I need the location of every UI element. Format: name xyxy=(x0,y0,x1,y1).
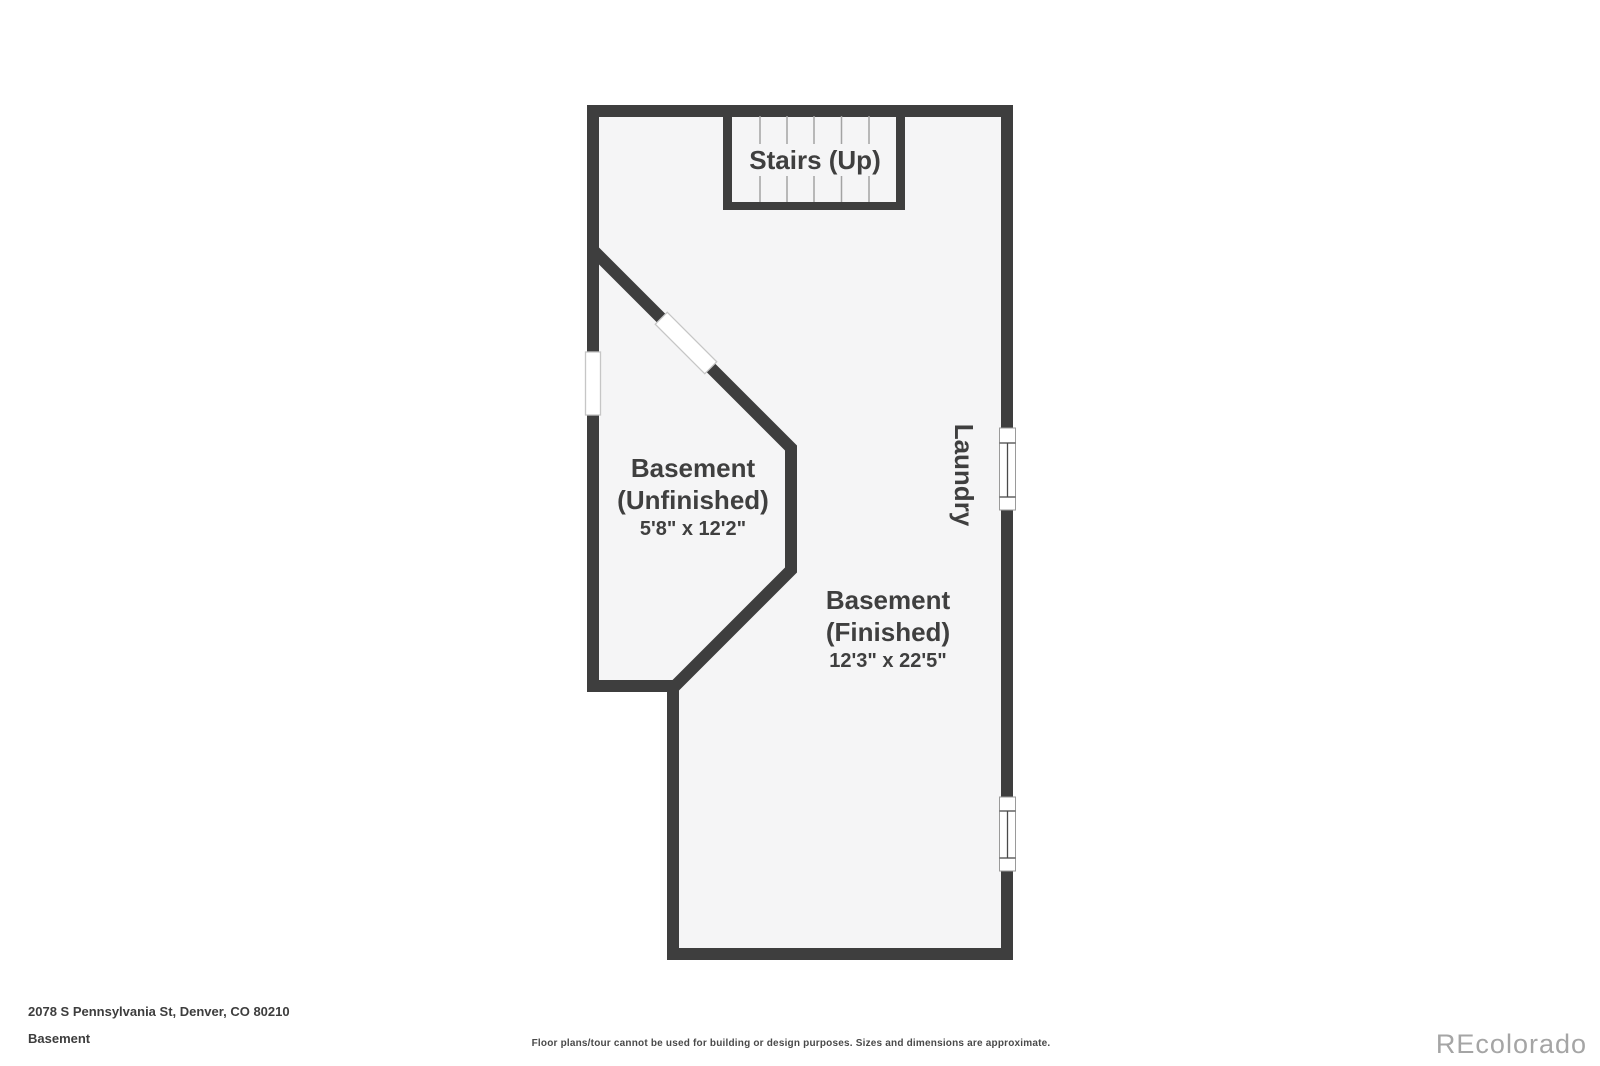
floor-name: Basement xyxy=(28,1031,90,1047)
room-name-line1: Basement xyxy=(778,584,998,616)
room-name-line2: (Finished) xyxy=(778,616,998,648)
room-name-line1: Basement xyxy=(583,452,803,484)
room-name-line2: (Unfinished) xyxy=(583,484,803,516)
window-right-wall-upper xyxy=(1000,428,1016,510)
recolorado-watermark: REcolorado xyxy=(1436,1029,1587,1059)
room-label-basement-unfinished: Basement (Unfinished) 5'8" x 12'2" xyxy=(583,452,803,542)
property-address: 2078 S Pennsylvania St, Denver, CO 80210 xyxy=(28,1004,290,1020)
floor-plan-page: Stairs (Up) Basement (Unfinished) 5'8" x… xyxy=(0,0,1600,1066)
room-label-basement-finished: Basement (Finished) 12'3" x 22'5" xyxy=(778,584,998,674)
stairs-label: Stairs (Up) xyxy=(715,144,915,176)
laundry-label: Laundry xyxy=(949,420,979,530)
room-dimensions: 12'3" x 22'5" xyxy=(778,648,998,674)
stairs-label-text: Stairs (Up) xyxy=(741,144,888,176)
window-right-wall-lower xyxy=(1000,797,1016,871)
window-left-wall xyxy=(586,352,601,415)
room-dimensions: 5'8" x 12'2" xyxy=(583,516,803,542)
disclaimer-text: Floor plans/tour cannot be used for buil… xyxy=(532,1037,1051,1051)
